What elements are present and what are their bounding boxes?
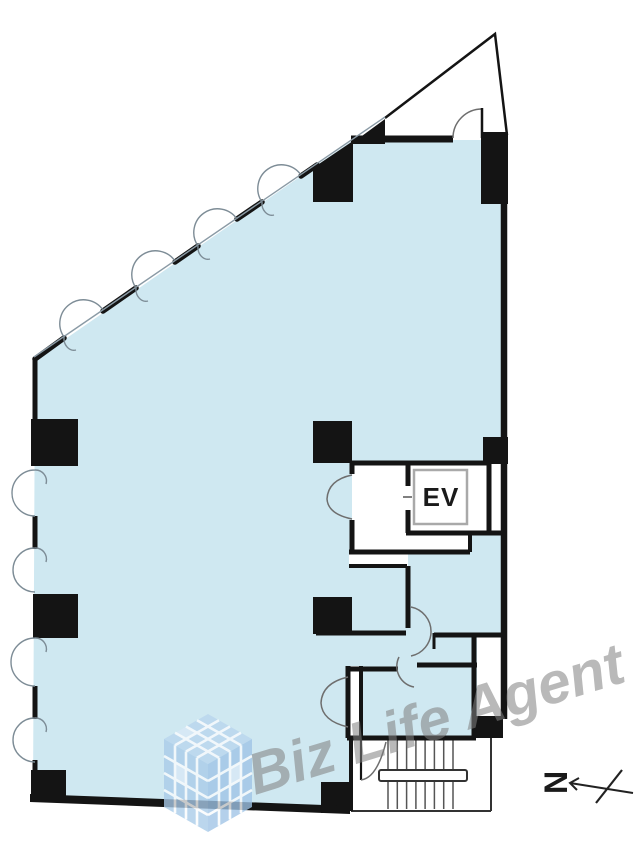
north-letter: N <box>538 771 574 794</box>
floor-plan-page: EV Biz Life Agent N <box>0 0 640 853</box>
stair-handrail <box>379 770 467 781</box>
column-top-right <box>481 132 508 204</box>
column-center-upper <box>313 421 352 463</box>
column-left-upper <box>31 419 78 466</box>
elevator: EV <box>414 470 467 524</box>
elevator-hall-room <box>352 462 409 551</box>
floor-plan-canvas: EV Biz Life Agent N <box>0 0 640 853</box>
cube-logo <box>164 714 252 832</box>
elevator-label: EV <box>423 482 460 512</box>
column-center-lower <box>313 597 352 634</box>
column-left-mid <box>33 594 78 638</box>
column-right-mid <box>483 437 508 464</box>
